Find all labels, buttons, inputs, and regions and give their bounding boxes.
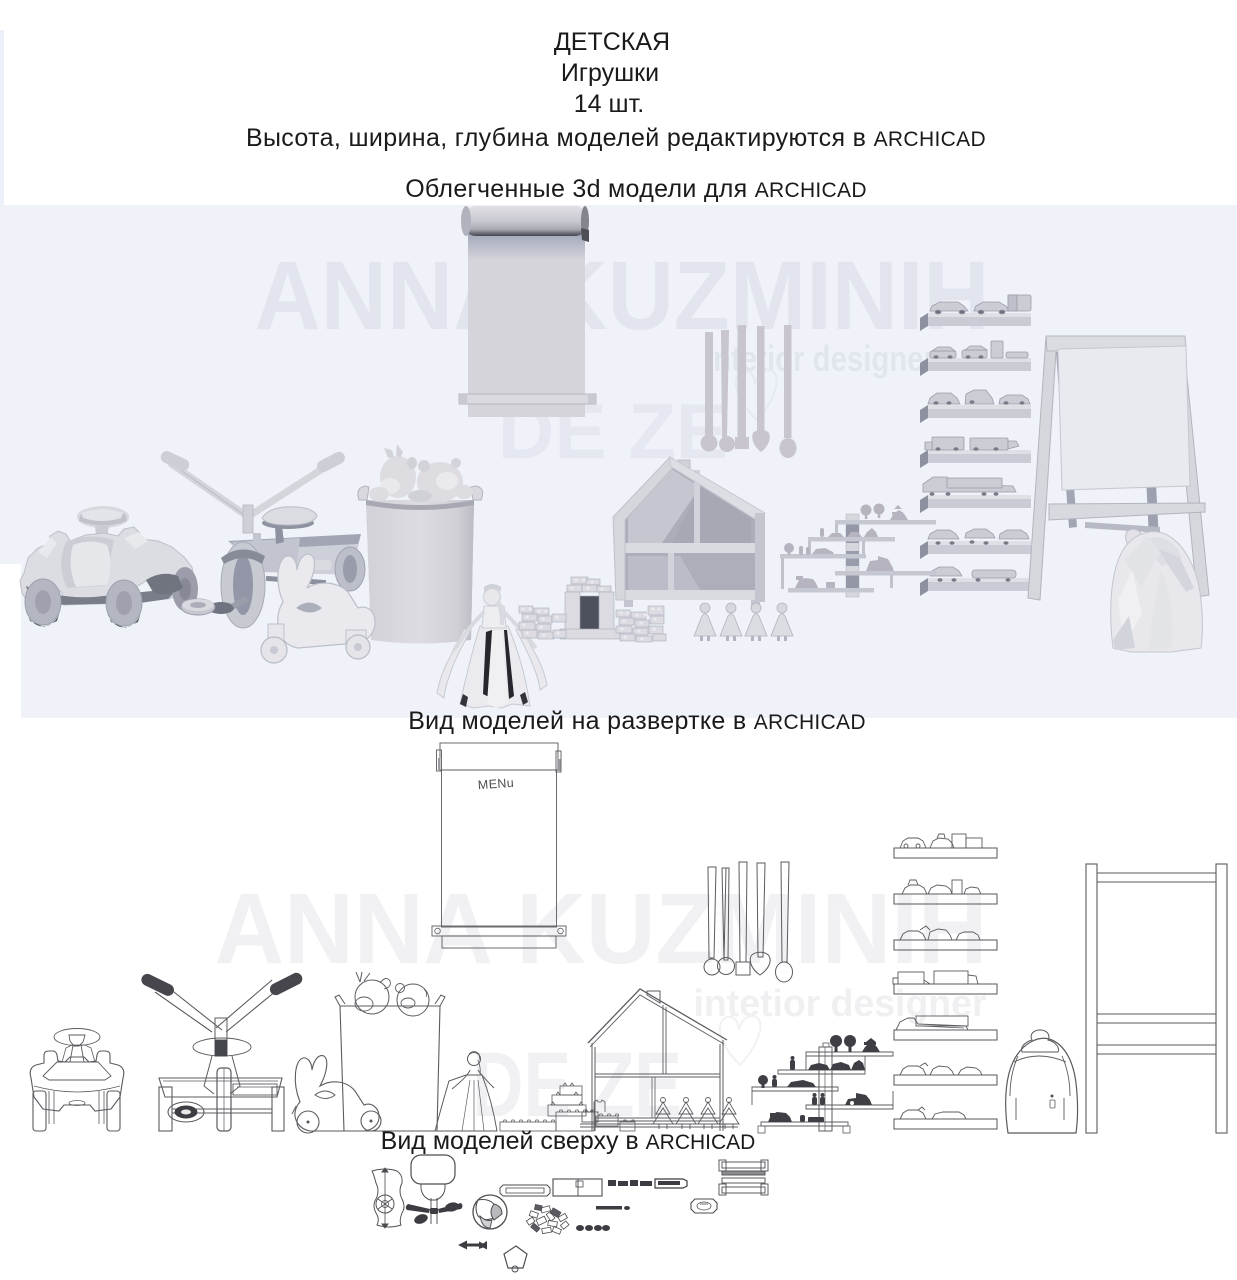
svg-text:ДЕТСКАЯ: ДЕТСКАЯ (554, 28, 670, 56)
svg-text:14 шт.: 14 шт. (574, 90, 644, 118)
svg-text:intetior designer: intetior designer (694, 983, 987, 1025)
svg-text:MENu: MENu (477, 776, 514, 793)
svg-text:Облегченные 3d модели для ARC: Облегченные 3d модели для ARCHICAD (405, 175, 867, 203)
svg-text:Вид моделей на развертке в ARC: Вид моделей на развертке в ARCHICAD (408, 707, 866, 735)
svg-text:Высота, ширина, глубина моделе: Высота, ширина, глубина моделей редактир… (246, 124, 986, 152)
svg-text:Игрушки: Игрушки (561, 59, 659, 87)
svg-text:ANNA KUZMINIH: ANNA KUZMINIH (215, 873, 988, 985)
svg-text:Вид моделей сверху в ARCHICAD: Вид моделей сверху в ARCHICAD (381, 1127, 756, 1155)
svg-text:ANNA KUZMINIH: ANNA KUZMINIH (255, 241, 990, 350)
